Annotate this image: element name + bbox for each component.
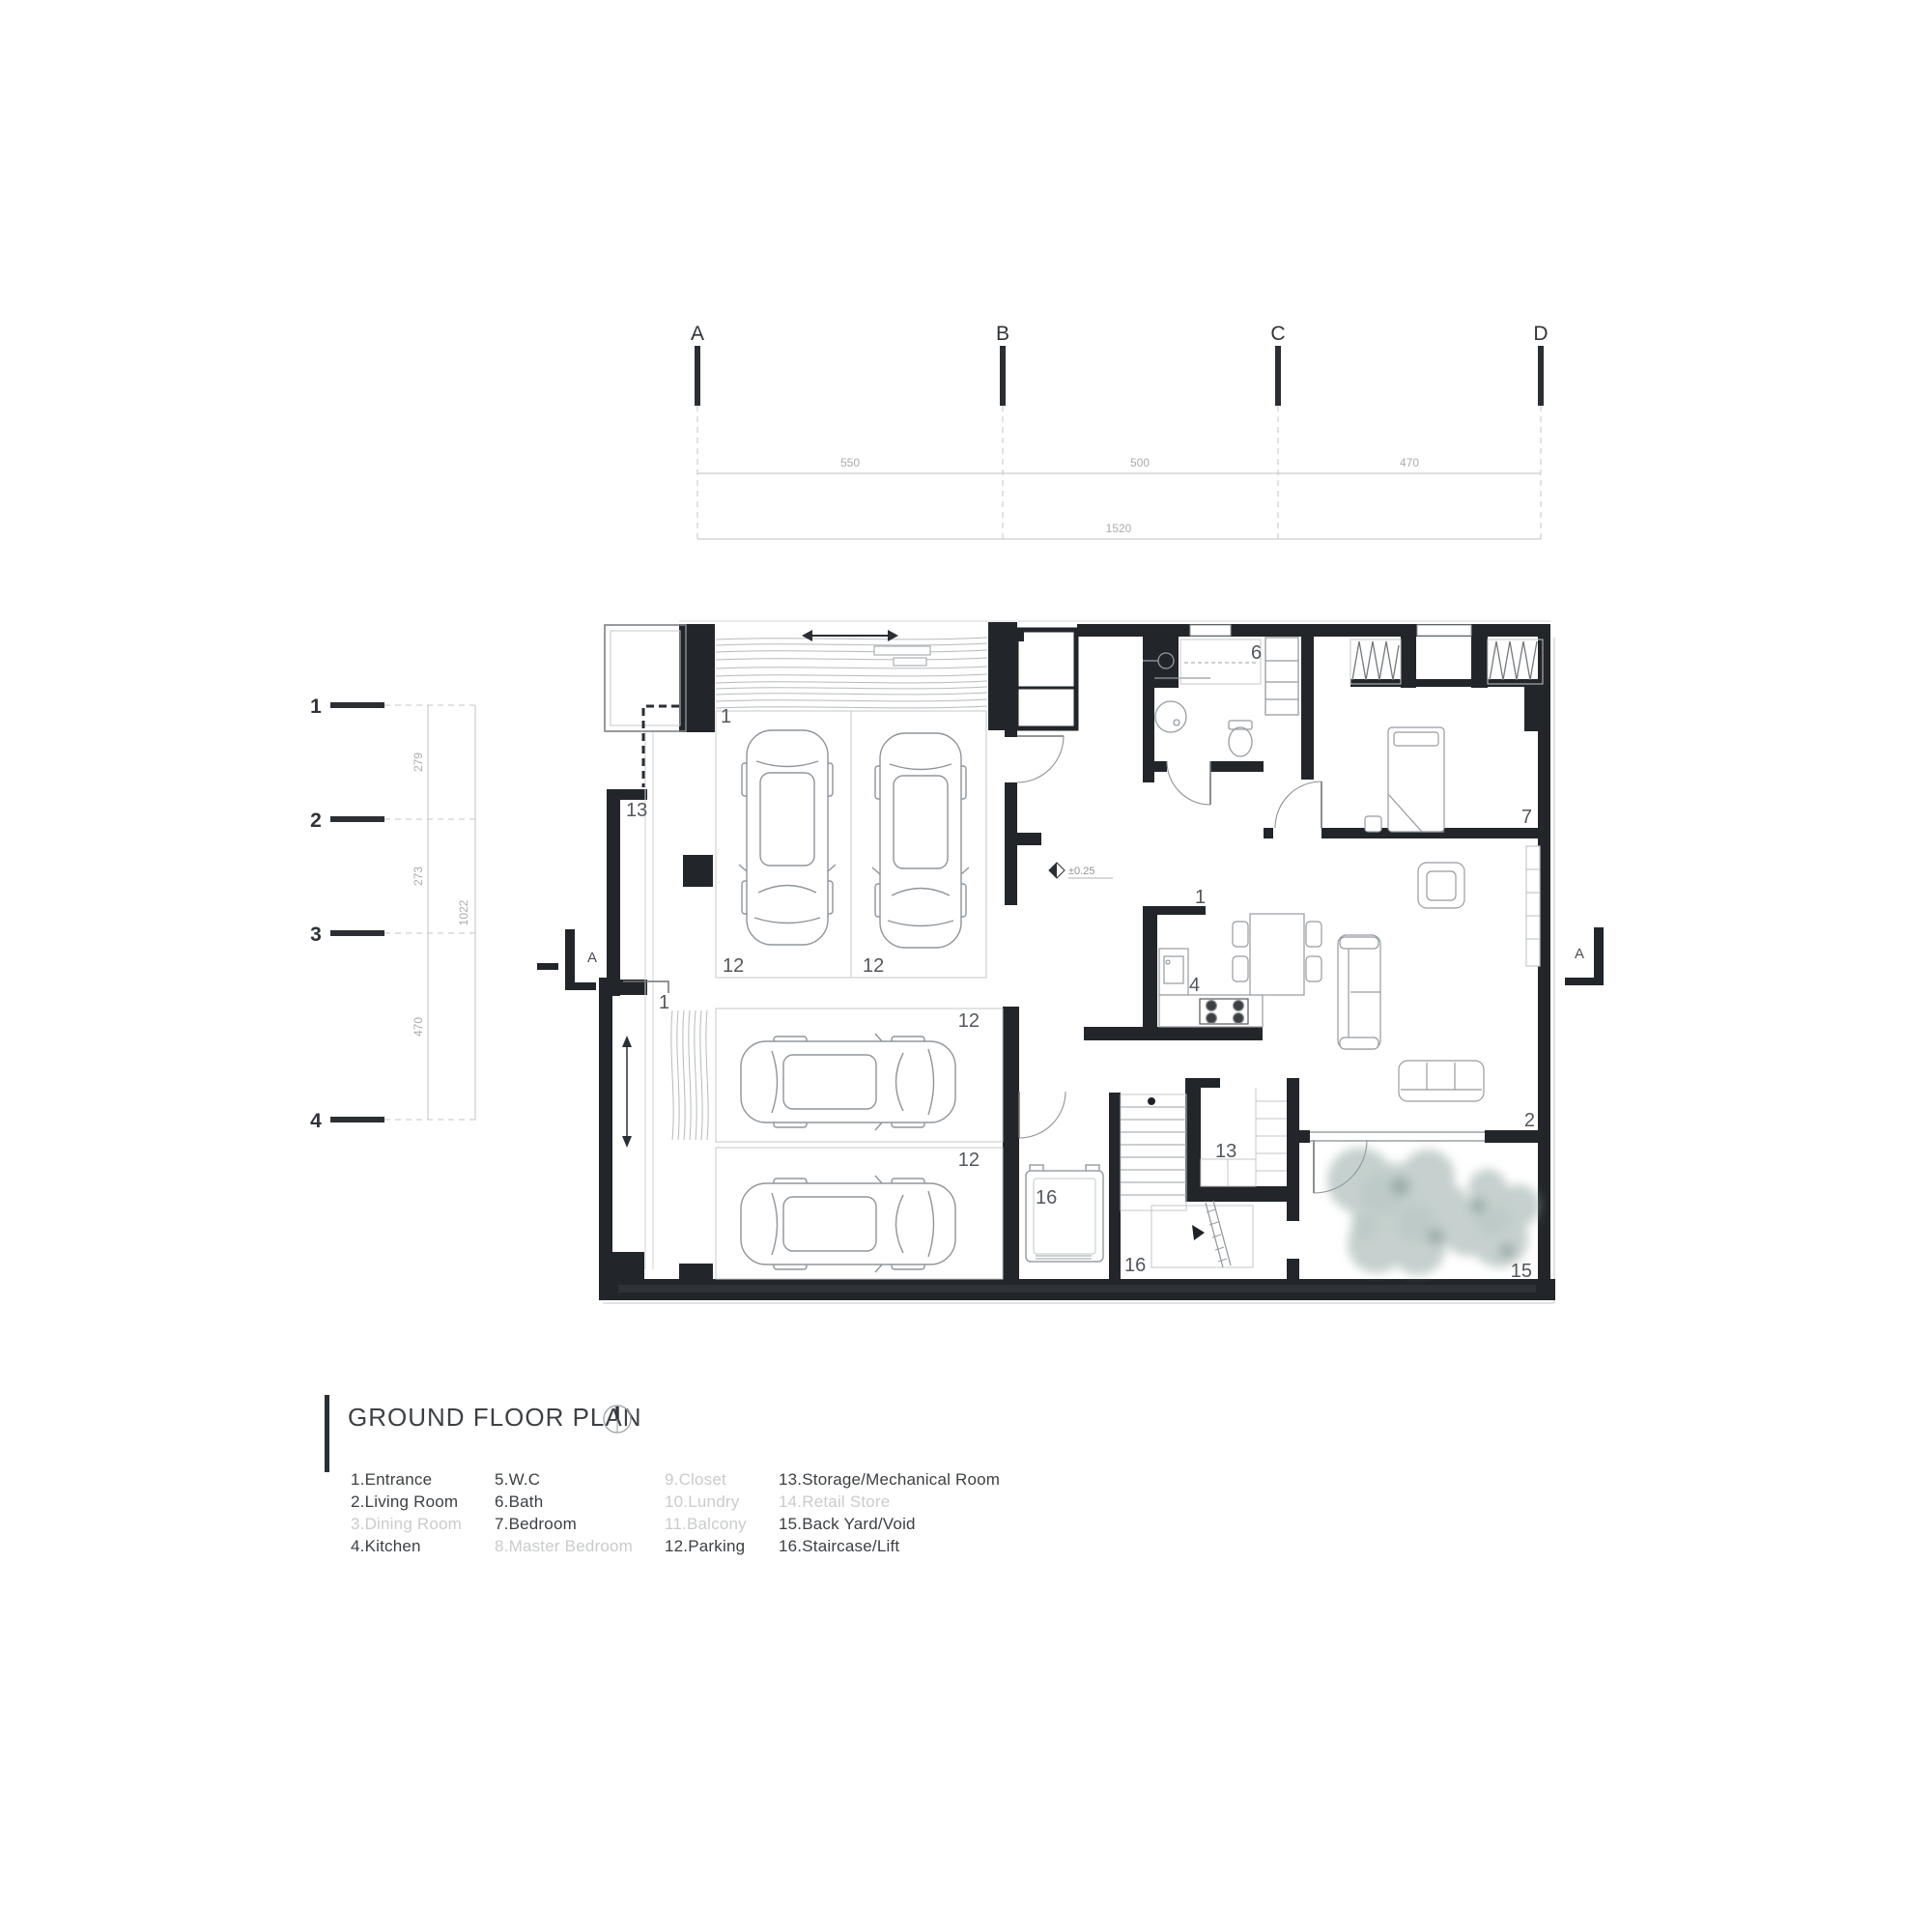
car-icon	[872, 733, 969, 948]
dimension-label: 500	[1130, 456, 1150, 469]
room-label: 1	[1195, 887, 1206, 908]
legend-item: 3.Dining Room	[351, 1513, 495, 1535]
room-label: 2	[1524, 1110, 1535, 1131]
column-grid: A B C D 550 500 470 1520	[691, 323, 1548, 541]
legend-item: 4.Kitchen	[351, 1535, 495, 1557]
ramp-direction-arrow	[622, 1036, 632, 1148]
legend-item: 16.Staircase/Lift	[779, 1535, 1000, 1557]
ramp	[671, 1010, 708, 1140]
legend-item: 14.Retail Store	[779, 1491, 1000, 1513]
grid-column-label: D	[1533, 323, 1548, 345]
room-label: 16	[1036, 1187, 1057, 1208]
legend-item: 7.Bedroom	[495, 1513, 665, 1535]
grid-row-label: 2	[310, 810, 322, 832]
grid-column-label: C	[1270, 323, 1285, 345]
section-marker-label: A	[587, 950, 597, 966]
room-label: 13	[1215, 1141, 1236, 1162]
dimension-total-label: 1520	[1106, 522, 1132, 535]
balcony-outline	[605, 625, 686, 731]
level-marker: ±0.25	[1049, 863, 1113, 878]
legend-item: 13.Storage/Mechanical Room	[779, 1468, 1000, 1491]
car-icon	[741, 1176, 955, 1272]
dimension-label: 470	[412, 1017, 425, 1037]
row-grid: 1 2 3 4 279 273 470 1022	[310, 696, 477, 1132]
bedroom-furniture	[1365, 727, 1444, 832]
grid-row-label: 3	[310, 923, 322, 946]
dimension-label: 550	[840, 456, 860, 469]
storage-shelves	[1201, 1088, 1287, 1186]
living-room-furniture	[1338, 846, 1540, 1101]
section-marker-a-left: A	[565, 929, 597, 990]
grid-column-label: B	[996, 323, 1009, 345]
north-indicator-icon	[601, 1403, 634, 1435]
room-label: 12	[958, 1010, 980, 1032]
room-label: 12	[863, 955, 884, 977]
dimension-label: 470	[1400, 456, 1419, 469]
legend-item: 8.Master Bedroom	[495, 1535, 665, 1557]
room-label: 7	[1521, 807, 1532, 828]
legend-item: 11.Balcony	[665, 1513, 779, 1535]
slide-arrow-icon	[802, 630, 898, 641]
duct-shaft	[1012, 630, 1076, 728]
room-label: 13	[626, 800, 647, 821]
grid-row-label: 1	[310, 696, 322, 718]
room-label: 12	[958, 1150, 980, 1171]
dimension-total-label: 1022	[457, 899, 470, 925]
legend-item: 10.Lundry	[665, 1491, 779, 1513]
room-label: 16	[1124, 1255, 1146, 1276]
legend-item: 9.Closet	[665, 1468, 779, 1491]
glass-wall	[1310, 1132, 1485, 1141]
room-label: 15	[1511, 1261, 1532, 1282]
car-icon	[739, 730, 836, 945]
room-label: 1	[721, 706, 731, 727]
dimension-label: 279	[412, 753, 425, 772]
section-marker-label: A	[1575, 946, 1584, 962]
room-label: 6	[1251, 642, 1262, 664]
room-legend: 1.Entrance 2.Living Room 3.Dining Room 4…	[351, 1468, 1000, 1557]
room-label: 4	[1189, 975, 1200, 996]
section-marker-a-right: A	[1565, 927, 1604, 985]
legend-item: 1.Entrance	[351, 1468, 495, 1491]
cars	[739, 730, 969, 1272]
backyard-trees	[1327, 1148, 1540, 1275]
dining-set	[1233, 914, 1321, 995]
elevator	[1026, 1165, 1103, 1262]
dashed-wall-line	[643, 706, 679, 787]
garage-door	[716, 638, 987, 708]
legend-item: 6.Bath	[495, 1491, 665, 1513]
legend-item: 5.W.C	[495, 1468, 665, 1491]
legend-item: 12.Parking	[665, 1535, 779, 1557]
title-accent-bar	[325, 1395, 329, 1472]
grid-column-label: A	[691, 323, 704, 345]
car-icon	[741, 1034, 955, 1130]
legend-item: 2.Living Room	[351, 1491, 495, 1513]
dimension-label: 273	[412, 867, 425, 886]
legend-item: 15.Back Yard/Void	[779, 1513, 1000, 1535]
room-label: 12	[723, 955, 744, 977]
floor-plan-sheet: A B C D 550 500 470 1520 1 2 3 4	[0, 0, 1932, 1932]
wardrobe-closets	[1180, 639, 1543, 684]
room-label: 1	[659, 992, 669, 1013]
floor-plan-drawing: A B C D 550 500 470 1520 1 2 3 4	[0, 0, 1932, 1932]
grid-row-label: 4	[310, 1110, 322, 1132]
page-title: GROUND FLOOR PLAN	[348, 1403, 642, 1433]
staircase	[1121, 1094, 1253, 1267]
title-block: GROUND FLOOR PLAN	[325, 1395, 642, 1472]
level-marker-label: ±0.25	[1068, 866, 1094, 877]
